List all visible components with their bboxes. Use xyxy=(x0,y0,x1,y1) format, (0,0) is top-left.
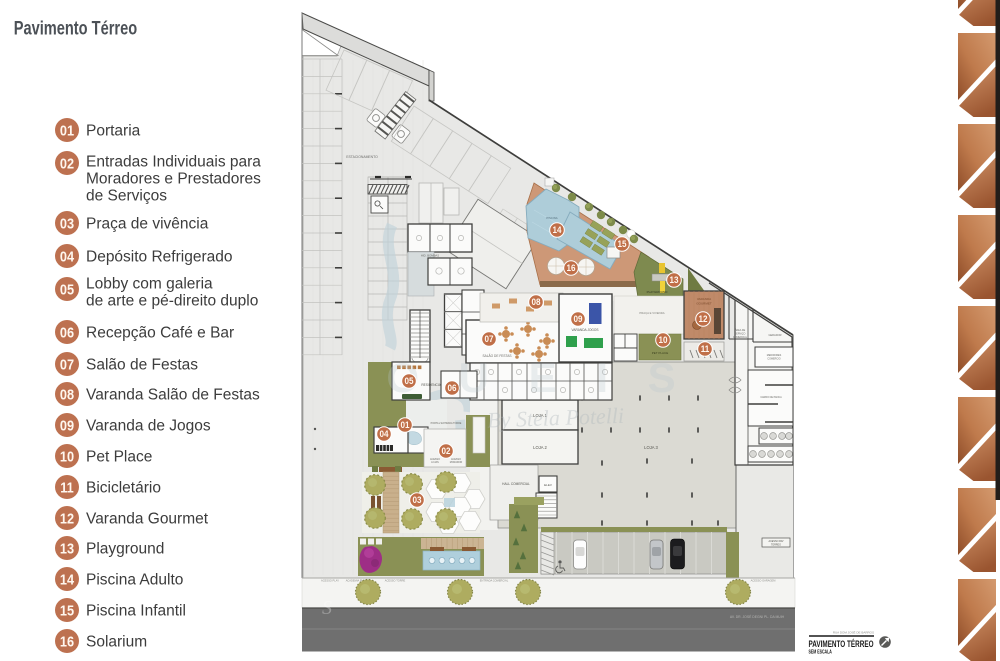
svg-text:Recepção Café e Bar: Recepção Café e Bar xyxy=(86,325,234,342)
svg-text:PISCINA: PISCINA xyxy=(546,216,557,220)
svg-text:GERADOR: GERADOR xyxy=(768,333,781,337)
svg-text:Salão de Festas: Salão de Festas xyxy=(86,357,198,374)
svg-text:16: 16 xyxy=(567,263,576,273)
svg-text:MORADOR: MORADOR xyxy=(450,461,463,464)
svg-text:O U E I S: O U E I S xyxy=(386,354,689,401)
svg-text:Playground: Playground xyxy=(86,541,164,558)
svg-text:RUA DOM JOSÉ DE BARROS: RUA DOM JOSÉ DE BARROS xyxy=(833,630,874,635)
svg-text:ELEV: ELEV xyxy=(544,483,552,487)
svg-text:CARRO DE PANCA: CARRO DE PANCA xyxy=(760,396,782,399)
svg-text:04: 04 xyxy=(60,247,74,264)
svg-text:ACESSO TORRE: ACESSO TORRE xyxy=(385,579,406,583)
svg-text:PORTA 2 ENTRADA TORRE: PORTA 2 ENTRADA TORRE xyxy=(431,422,462,425)
svg-text:de Serviços: de Serviços xyxy=(86,188,167,205)
svg-text:SEM ESCALA: SEM ESCALA xyxy=(809,649,833,655)
svg-text:Bicicletário: Bicicletário xyxy=(86,480,161,497)
svg-text:COMERCIO: COMERCIO xyxy=(767,358,780,361)
svg-text:HALL COMERCIAL: HALL COMERCIAL xyxy=(502,482,530,486)
svg-text:ESTACIONAMENTO: ESTACIONAMENTO xyxy=(346,155,378,159)
svg-text:Portaria: Portaria xyxy=(86,123,141,140)
svg-text:05: 05 xyxy=(60,280,74,297)
svg-text:14: 14 xyxy=(60,570,74,587)
svg-text:TERREO: TERREO xyxy=(771,544,781,547)
svg-text:12: 12 xyxy=(60,509,74,526)
svg-text:11: 11 xyxy=(60,478,74,495)
svg-text:10: 10 xyxy=(60,447,74,464)
svg-text:LOJAS: LOJAS xyxy=(431,461,439,464)
svg-text:de arte e pé-direito duplo: de arte e pé-direito duplo xyxy=(86,293,258,310)
svg-text:Depósito Refrigerado: Depósito Refrigerado xyxy=(86,249,232,266)
svg-text:06: 06 xyxy=(448,383,457,393)
svg-text:05: 05 xyxy=(405,376,414,386)
svg-text:Praça de vivência: Praça de vivência xyxy=(86,216,209,233)
svg-text:15: 15 xyxy=(618,239,627,249)
svg-text:08: 08 xyxy=(532,297,541,307)
svg-text:VARANDA JOGOS: VARANDA JOGOS xyxy=(571,328,598,332)
svg-text:Pet Place: Pet Place xyxy=(86,449,152,466)
svg-text:Varanda de Jogos: Varanda de Jogos xyxy=(86,418,211,435)
svg-text:10: 10 xyxy=(659,335,668,345)
svg-text:06: 06 xyxy=(60,323,74,340)
svg-text:Entradas Individuais para: Entradas Individuais para xyxy=(86,154,261,171)
svg-text:Pavimento Térreo: Pavimento Térreo xyxy=(14,16,137,39)
svg-text:01: 01 xyxy=(401,420,410,430)
svg-text:11: 11 xyxy=(701,344,710,354)
svg-text:Piscina Infantil: Piscina Infantil xyxy=(86,603,186,620)
svg-text:02: 02 xyxy=(60,154,74,171)
svg-text:04: 04 xyxy=(380,429,389,439)
svg-text:08: 08 xyxy=(60,385,74,402)
svg-text:12: 12 xyxy=(699,314,708,324)
svg-text:ACESSO PLAY: ACESSO PLAY xyxy=(321,579,339,583)
svg-text:Piscina Adulto: Piscina Adulto xyxy=(86,572,183,589)
svg-text:S: S xyxy=(322,597,332,619)
svg-text:13: 13 xyxy=(60,539,74,556)
svg-text:Moradores e Prestadores: Moradores e Prestadores xyxy=(86,171,261,188)
svg-text:PRAÇA E VIVENDA: PRAÇA E VIVENDA xyxy=(639,311,664,315)
svg-text:01: 01 xyxy=(60,121,74,138)
svg-text:13: 13 xyxy=(670,275,679,285)
svg-text:By Stela Potelli: By Stela Potelli xyxy=(487,403,625,433)
svg-text:16: 16 xyxy=(60,632,74,649)
svg-text:PLAYGROUND: PLAYGROUND xyxy=(647,290,669,294)
svg-text:Varanda Salão de Festas: Varanda Salão de Festas xyxy=(86,387,260,404)
svg-text:15: 15 xyxy=(60,601,74,618)
svg-text:09: 09 xyxy=(60,416,74,433)
svg-text:LOJA 2: LOJA 2 xyxy=(533,445,547,450)
svg-text:Varanda Gourmet: Varanda Gourmet xyxy=(86,511,209,528)
svg-text:14: 14 xyxy=(553,225,562,235)
svg-text:Lobby com galeria: Lobby com galeria xyxy=(86,276,213,293)
svg-text:07: 07 xyxy=(485,334,494,344)
svg-text:LOJA 3: LOJA 3 xyxy=(644,445,658,450)
svg-text:PAVIMENTO TÉRREO: PAVIMENTO TÉRREO xyxy=(809,639,874,650)
svg-text:ACESSO GARAGEM: ACESSO GARAGEM xyxy=(751,579,776,583)
svg-text:02: 02 xyxy=(442,446,451,456)
svg-text:VARANDA: VARANDA xyxy=(697,297,711,301)
svg-text:AV. DR. JOSÉ DEGNI PL. DA MUI: AV. DR. JOSÉ DEGNI PL. DA MUIH xyxy=(730,614,785,619)
svg-text:HID. BOMBAS: HID. BOMBAS xyxy=(421,254,439,258)
svg-text:Solarium: Solarium xyxy=(86,634,147,651)
svg-text:03: 03 xyxy=(413,495,422,505)
svg-text:09: 09 xyxy=(574,314,583,324)
svg-text:07: 07 xyxy=(60,355,74,372)
svg-text:03: 03 xyxy=(60,214,74,231)
svg-text:ENTRADA COMERCIAL: ENTRADA COMERCIAL xyxy=(480,579,509,583)
svg-text:GOURMET: GOURMET xyxy=(696,302,712,306)
svg-text:COMERCIAL: COMERCIAL xyxy=(733,336,748,339)
